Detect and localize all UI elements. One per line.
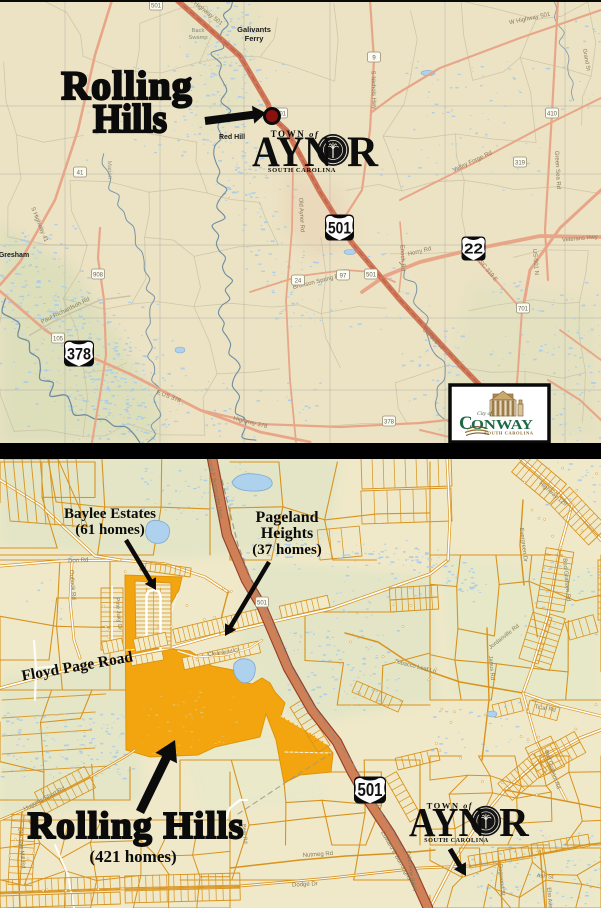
svg-text:SOUTH CAROLINA: SOUTH CAROLINA <box>268 167 336 174</box>
svg-text:SOUTH CAROLINA: SOUTH CAROLINA <box>424 838 489 844</box>
svg-text:Zion Rd: Zion Rd <box>67 557 88 564</box>
svg-text:(37 homes): (37 homes) <box>252 542 322 558</box>
svg-text:R: R <box>347 129 379 176</box>
svg-text:Ferry: Ferry <box>245 34 265 43</box>
svg-text:(421 homes): (421 homes) <box>89 847 176 866</box>
svg-text:97: 97 <box>340 273 347 279</box>
svg-text:378: 378 <box>67 344 91 363</box>
svg-text:Heights: Heights <box>261 525 313 542</box>
svg-text:501: 501 <box>151 3 162 9</box>
svg-text:Rolling Hills: Rolling Hills <box>28 805 245 847</box>
svg-text:22: 22 <box>464 241 483 258</box>
svg-text:Baylee Estates: Baylee Estates <box>64 506 156 522</box>
svg-text:Pageland: Pageland <box>255 509 318 526</box>
svg-text:(61 homes): (61 homes) <box>75 522 145 538</box>
svg-text:SOUTH CAROLINA: SOUTH CAROLINA <box>484 431 533 436</box>
svg-text:24: 24 <box>295 278 302 284</box>
svg-text:City of: City of <box>477 410 493 417</box>
svg-text:Marion: Marion <box>106 161 113 180</box>
svg-text:41: 41 <box>77 170 84 176</box>
svg-text:Hills: Hills <box>93 96 167 141</box>
svg-text:501: 501 <box>358 780 383 800</box>
svg-text:908: 908 <box>93 272 104 278</box>
svg-text:501: 501 <box>366 272 377 278</box>
svg-text:378: 378 <box>384 419 395 425</box>
svg-text:410: 410 <box>547 111 558 117</box>
svg-text:Red Hill: Red Hill <box>219 134 245 141</box>
svg-text:319: 319 <box>515 160 526 166</box>
svg-text:Back: Back <box>192 28 205 34</box>
svg-text:105: 105 <box>53 336 64 342</box>
svg-text:501: 501 <box>257 600 268 606</box>
svg-text:Swamp: Swamp <box>188 35 207 41</box>
svg-text:R: R <box>499 800 529 845</box>
svg-text:Enoch Rd: Enoch Rd <box>399 245 406 272</box>
svg-text:Gresham: Gresham <box>0 252 29 259</box>
svg-text:501: 501 <box>328 218 351 237</box>
svg-text:Galivants: Galivants <box>237 25 271 34</box>
svg-text:701: 701 <box>518 306 529 312</box>
